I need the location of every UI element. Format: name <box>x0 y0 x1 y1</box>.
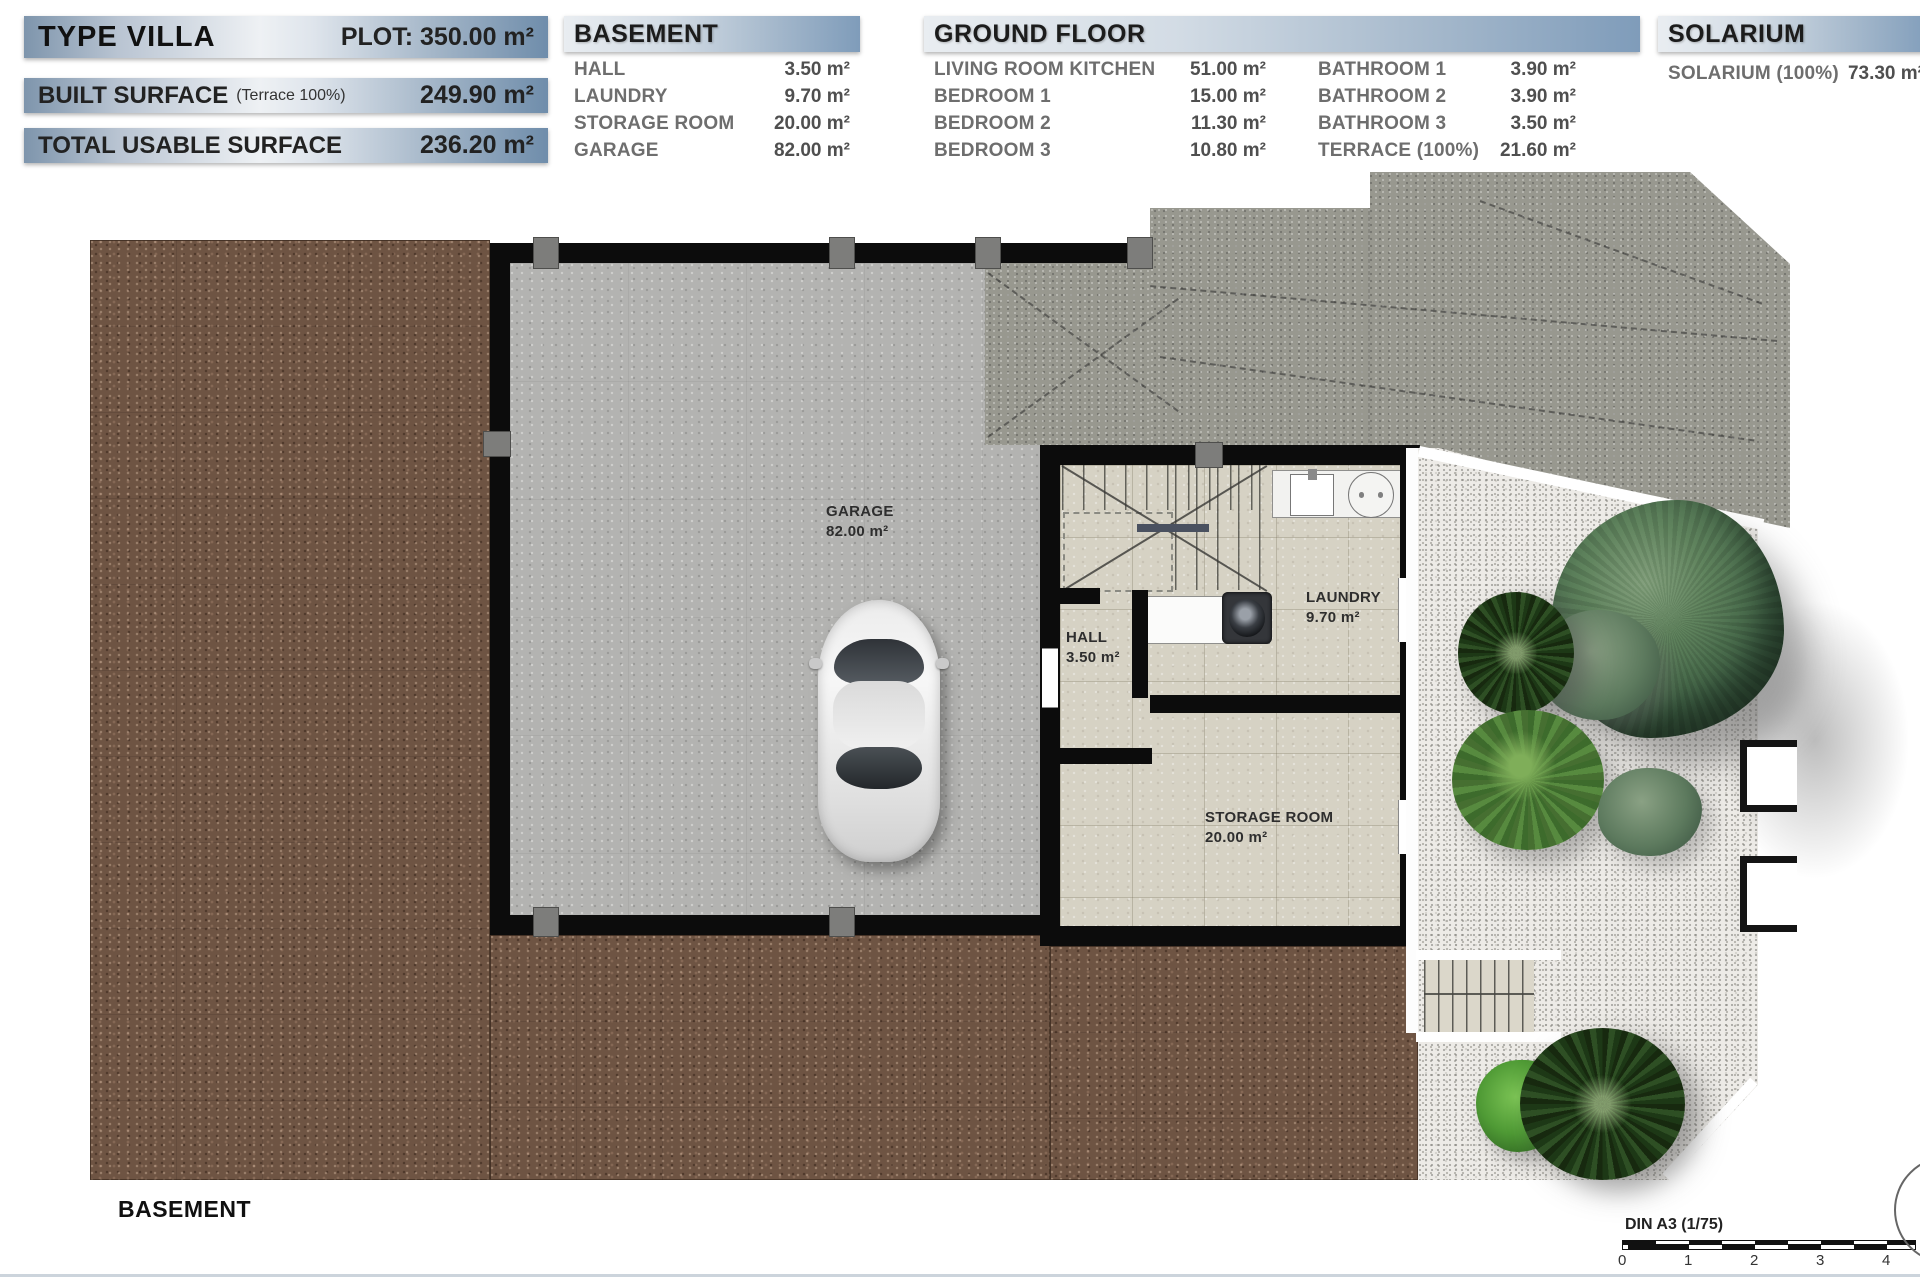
row-value: 21.60 m² <box>1500 140 1576 162</box>
wall-segment <box>490 243 510 935</box>
row-label: STORAGE ROOM <box>574 113 774 135</box>
sheet-title: TYPE VILLA <box>38 21 341 54</box>
legend-row: LIVING ROOM KITCHEN51.00 m² <box>924 56 1276 83</box>
built-surface-note: (Terrace 100%) <box>236 87 420 105</box>
room-label-laundry: LAUNDRY 9.70 m² <box>1306 588 1381 627</box>
floor-name-label: BASEMENT <box>118 1196 251 1223</box>
total-usable-bar: TOTAL USABLE SURFACE 236.20 m² <box>24 128 548 163</box>
scale-tick: 2 <box>1750 1252 1758 1269</box>
ground-floor-col1: LIVING ROOM KITCHEN51.00 m² BEDROOM 115.… <box>924 56 1276 164</box>
title-bar: TYPE VILLA PLOT: 350.00 m² <box>24 16 548 58</box>
room-area: 9.70 m² <box>1306 608 1381 628</box>
row-label: GARAGE <box>574 140 774 162</box>
row-value: 20.00 m² <box>774 113 850 135</box>
row-value: 10.80 m² <box>1190 140 1266 162</box>
row-label: BEDROOM 1 <box>934 86 1190 108</box>
row-label: BATHROOM 1 <box>1318 59 1511 81</box>
pillar <box>976 238 1000 268</box>
ground-floor-legend-title: GROUND FLOOR <box>934 20 1146 49</box>
row-label: BEDROOM 3 <box>934 140 1190 162</box>
basement-legend-title: BASEMENT <box>574 20 718 49</box>
total-usable-label: TOTAL USABLE SURFACE <box>38 132 420 160</box>
row-value: 11.30 m² <box>1191 113 1266 135</box>
row-label: TERRACE (100%) <box>1318 140 1500 162</box>
pillar <box>1196 443 1222 467</box>
car-windshield <box>834 639 924 684</box>
ground-floor-legend: GROUND FLOOR LIVING ROOM KITCHEN51.00 m²… <box>924 16 1640 52</box>
basin-dot <box>1378 492 1383 497</box>
wall-segment <box>1040 926 1420 946</box>
row-value: 15.00 m² <box>1190 86 1266 108</box>
basement-legend: BASEMENT HALL3.50 m² LAUNDRY9.70 m² STOR… <box>564 16 860 164</box>
legend-row: BATHROOM 33.50 m² <box>1308 110 1586 137</box>
built-surface-bar: BUILT SURFACE (Terrace 100%) 249.90 m² <box>24 78 548 113</box>
wall-segment <box>1040 445 1420 465</box>
total-usable-value: 236.20 m² <box>420 131 534 160</box>
room-label-garage: GARAGE 82.00 m² <box>826 502 894 541</box>
row-value: 51.00 m² <box>1190 59 1266 81</box>
legend-row: GARAGE82.00 m² <box>564 137 860 164</box>
sheet-bottom-rule <box>0 1274 1920 1277</box>
terrain-dirt-bottom <box>490 935 1050 1180</box>
palm-plant <box>1458 592 1574 714</box>
room-label-hall: HALL 3.50 m² <box>1066 628 1120 667</box>
row-value: 3.90 m² <box>1511 86 1576 108</box>
ground-floor-legend-header: GROUND FLOOR <box>924 16 1640 52</box>
wall-segment <box>1132 590 1148 698</box>
room-area: 20.00 m² <box>1205 828 1333 848</box>
solarium-legend-header: SOLARIUM <box>1658 16 1920 52</box>
room-name: LAUNDRY <box>1306 588 1381 608</box>
legend-row: BEDROOM 115.00 m² <box>924 83 1276 110</box>
basin-dot <box>1359 492 1364 497</box>
legend-row: BEDROOM 310.80 m² <box>924 137 1276 164</box>
garden-wall-face <box>1406 448 1420 1033</box>
room-name: GARAGE <box>826 502 894 522</box>
pillar <box>830 238 854 268</box>
legend-row: TERRACE (100%)21.60 m² <box>1308 137 1586 164</box>
wall-segment <box>490 915 1050 935</box>
legend-row: LAUNDRY9.70 m² <box>564 83 860 110</box>
basement-legend-header: BASEMENT <box>564 16 860 52</box>
door-opening <box>1042 648 1058 708</box>
legend-row: BATHROOM 23.90 m² <box>1308 83 1586 110</box>
dark-spiky-plant <box>1520 1028 1685 1180</box>
solarium-legend: SOLARIUM SOLARIUM (100%) 73.30 m² <box>1658 16 1920 87</box>
row-value: 3.50 m² <box>785 59 850 81</box>
scale-label: DIN A3 (1/75) <box>1625 1216 1723 1234</box>
scale-tick: 4 <box>1882 1252 1890 1269</box>
pillar <box>830 908 854 936</box>
walkway-band <box>1416 1032 1561 1042</box>
car-mirror <box>809 658 821 670</box>
built-surface-value: 249.90 m² <box>420 81 534 110</box>
wall-segment <box>1056 748 1152 764</box>
row-label: BATHROOM 2 <box>1318 86 1511 108</box>
scale-bar-bottom <box>1622 1244 1916 1250</box>
car <box>818 600 940 862</box>
wall-segment <box>1040 588 1056 648</box>
scale-tick: 1 <box>1684 1252 1692 1269</box>
car-roof <box>833 681 926 749</box>
legend-row: SOLARIUM (100%) 73.30 m² <box>1658 60 1920 87</box>
row-label: HALL <box>574 59 785 81</box>
room-name: HALL <box>1066 628 1120 648</box>
row-value: 9.70 m² <box>785 86 850 108</box>
row-value: 73.30 m² <box>1848 63 1920 85</box>
room-area: 3.50 m² <box>1066 648 1120 668</box>
row-label: BEDROOM 2 <box>934 113 1191 135</box>
scale-tick: 0 <box>1618 1252 1626 1269</box>
pillar <box>484 432 510 456</box>
driveway-seam <box>1368 172 1370 445</box>
walkway-band <box>1416 950 1561 960</box>
legend-row: HALL3.50 m² <box>564 56 860 83</box>
room-label-storage: STORAGE ROOM 20.00 m² <box>1205 808 1333 847</box>
garage-floor <box>510 263 1040 915</box>
washing-machine <box>1222 592 1272 644</box>
solarium-legend-title: SOLARIUM <box>1668 20 1805 49</box>
boundary-gate <box>1740 856 1797 932</box>
room-area: 82.00 m² <box>826 522 894 542</box>
row-label: SOLARIUM (100%) <box>1668 63 1848 85</box>
wall-segment <box>1150 695 1420 713</box>
fern-plant <box>1452 710 1604 850</box>
wall-segment <box>490 243 1152 263</box>
car-rear-window <box>836 747 921 789</box>
pillar <box>1128 238 1152 268</box>
room-name: STORAGE ROOM <box>1205 808 1333 828</box>
row-label: LAUNDRY <box>574 86 785 108</box>
faucet <box>1308 469 1317 479</box>
scale-tick: 3 <box>1816 1252 1824 1269</box>
row-label: LIVING ROOM KITCHEN <box>934 59 1190 81</box>
row-value: 82.00 m² <box>774 140 850 162</box>
round-basin <box>1348 472 1394 518</box>
pillar <box>534 908 558 936</box>
plot-value: PLOT: 350.00 m² <box>341 23 534 52</box>
row-value: 3.90 m² <box>1511 59 1576 81</box>
exterior-stairs <box>1424 960 1534 1032</box>
row-label: BATHROOM 3 <box>1318 113 1511 135</box>
boundary-gate <box>1740 740 1797 812</box>
laundry-sink <box>1290 474 1334 516</box>
ground-floor-col2: BATHROOM 13.90 m² BATHROOM 23.90 m² BATH… <box>1308 56 1586 164</box>
row-value: 3.50 m² <box>1511 113 1576 135</box>
legend-row: BATHROOM 13.90 m² <box>1308 56 1586 83</box>
built-surface-label: BUILT SURFACE <box>38 82 228 110</box>
terrain-dirt-bottom-right <box>1050 946 1418 1180</box>
terrain-dirt-left <box>90 240 490 1180</box>
floor-plan-sheet: { "legend": { "type_villa": { "title": "… <box>0 0 1920 1280</box>
basement-legend-rows: HALL3.50 m² LAUNDRY9.70 m² STORAGE ROOM2… <box>564 56 860 164</box>
stairs-landing-edge <box>1137 524 1209 532</box>
washer-drum <box>1229 599 1265 636</box>
bush-plant <box>1598 768 1702 856</box>
pillar <box>534 238 558 268</box>
legend-row: BEDROOM 211.30 m² <box>924 110 1276 137</box>
car-mirror <box>936 658 948 670</box>
legend-row: STORAGE ROOM20.00 m² <box>564 110 860 137</box>
